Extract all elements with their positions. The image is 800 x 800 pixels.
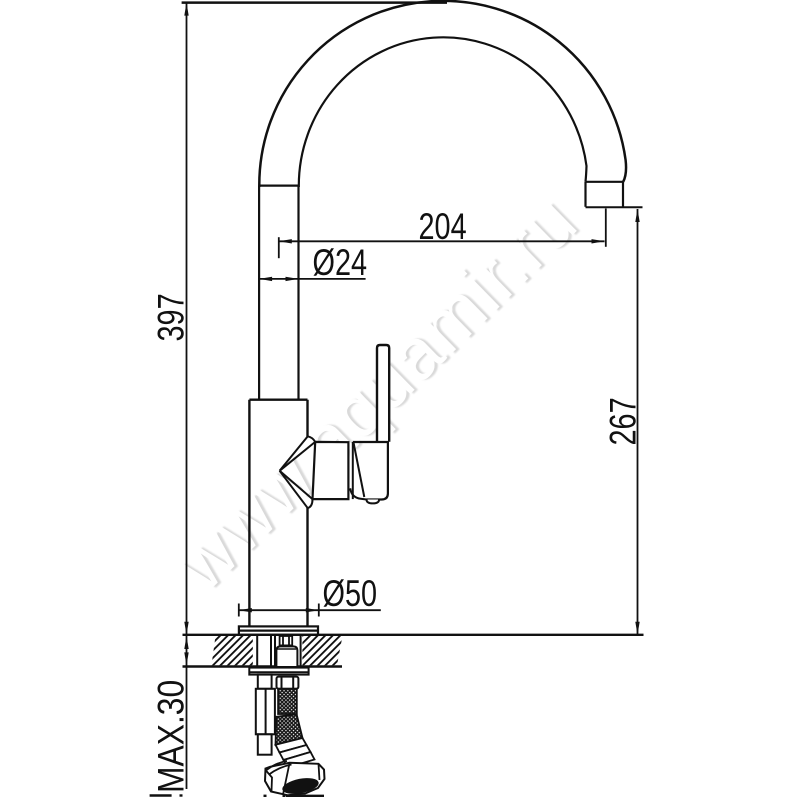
svg-text:204: 204 xyxy=(419,207,467,248)
svg-text:MAX.30: MAX.30 xyxy=(151,680,192,793)
svg-text:Ø50: Ø50 xyxy=(323,574,378,615)
svg-text:Ø24: Ø24 xyxy=(313,242,368,283)
svg-text:397: 397 xyxy=(151,293,192,341)
svg-text:267: 267 xyxy=(603,397,644,445)
